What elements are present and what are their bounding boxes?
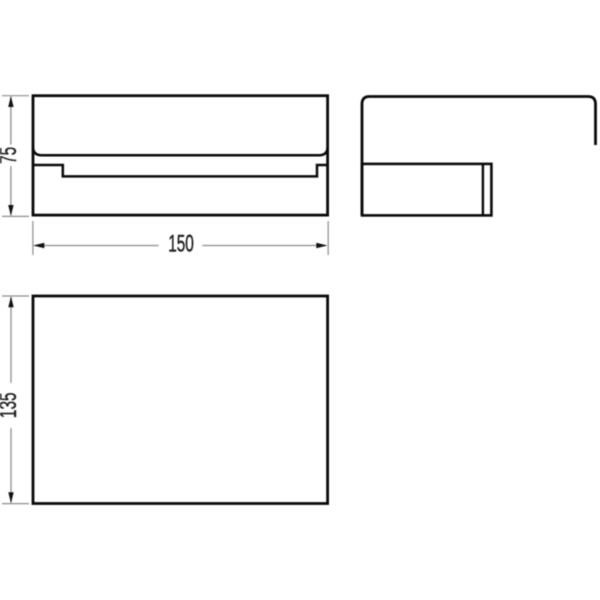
svg-text:150: 150 [168,231,194,257]
svg-text:75: 75 [0,147,22,164]
svg-text:135: 135 [0,393,22,419]
